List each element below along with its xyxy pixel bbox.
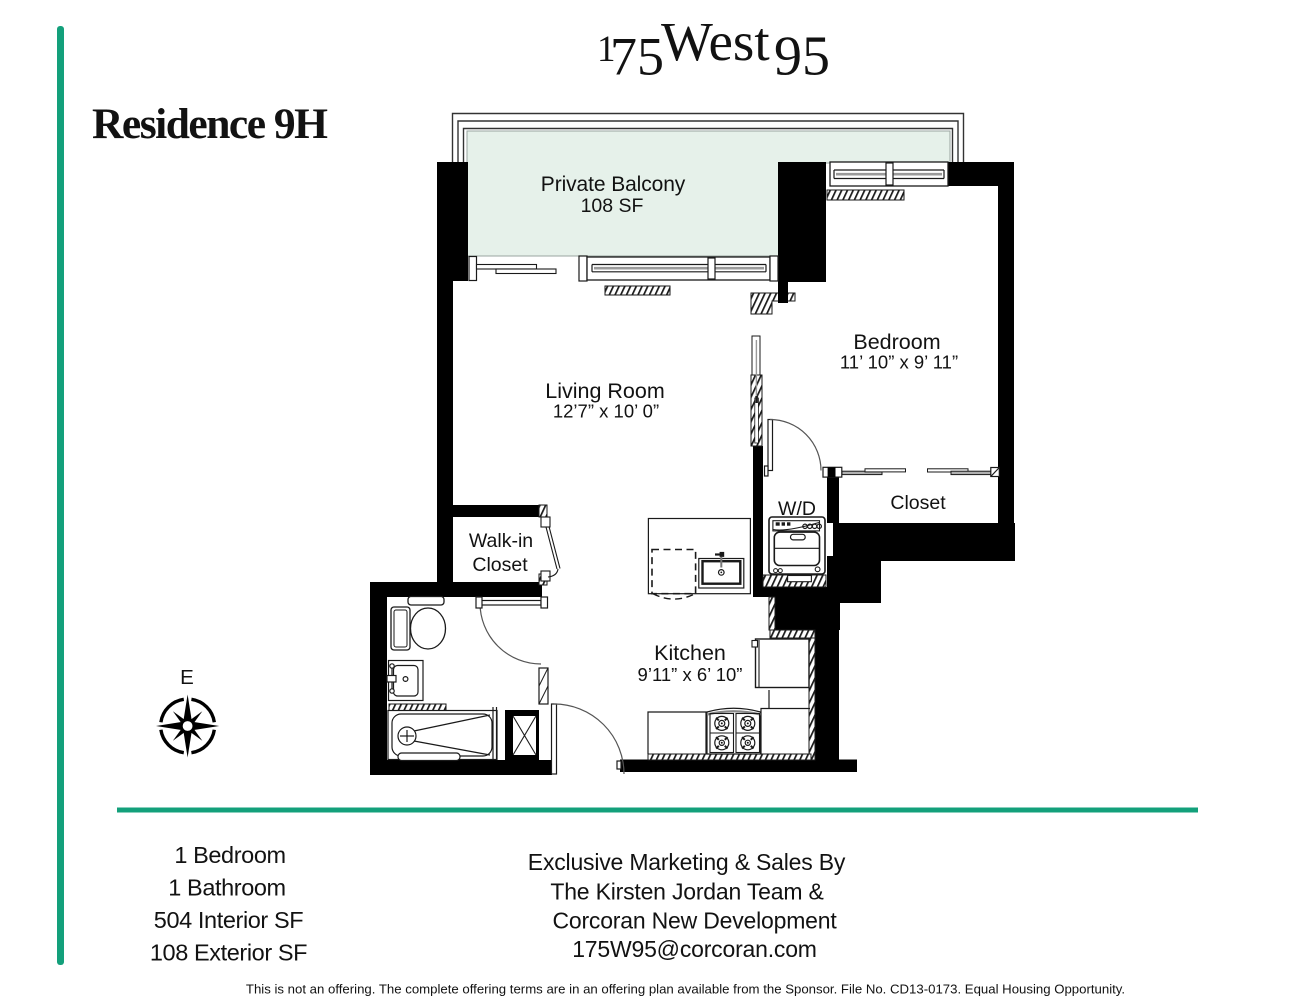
svg-text:12’7” x 10’ 0”: 12’7” x 10’ 0” (553, 401, 659, 422)
svg-text:1 Bathroom: 1 Bathroom (168, 875, 285, 901)
svg-text:108 Exterior SF: 108 Exterior SF (150, 940, 307, 966)
svg-text:W/D: W/D (778, 498, 816, 520)
svg-text:West: West (661, 11, 770, 72)
svg-text:11’ 10” x 9’ 11”: 11’ 10” x 9’ 11” (840, 352, 958, 373)
svg-text:Closet: Closet (890, 492, 946, 514)
svg-text:The Kirsten Jordan Team &: The Kirsten Jordan Team & (550, 879, 823, 905)
svg-text:108 SF: 108 SF (581, 195, 644, 217)
svg-text:Private Balcony: Private Balcony (541, 173, 686, 196)
svg-text:Walk-in: Walk-in (469, 530, 533, 552)
svg-text:E: E (180, 666, 194, 689)
svg-text:175W95@corcoran.com: 175W95@corcoran.com (572, 936, 817, 962)
svg-text:Living Room: Living Room (545, 379, 665, 403)
svg-text:This is not an offering. The c: This is not an offering. The complete of… (246, 982, 1125, 997)
svg-text:504 Interior SF: 504 Interior SF (154, 907, 303, 933)
svg-text:Corcoran New Development: Corcoran New Development (552, 908, 837, 934)
svg-text:Kitchen: Kitchen (654, 641, 726, 665)
svg-text:Exclusive Marketing & Sales By: Exclusive Marketing & Sales By (528, 849, 846, 875)
svg-text:95: 95 (774, 26, 830, 88)
svg-text:9’11” x 6’ 10”: 9’11” x 6’ 10” (638, 664, 743, 685)
svg-text:Residence 9H: Residence 9H (92, 100, 328, 148)
svg-text:Bedroom: Bedroom (853, 330, 940, 354)
svg-text:75: 75 (610, 27, 664, 87)
svg-text:Closet: Closet (472, 554, 528, 576)
svg-text:1 Bedroom: 1 Bedroom (174, 842, 285, 868)
